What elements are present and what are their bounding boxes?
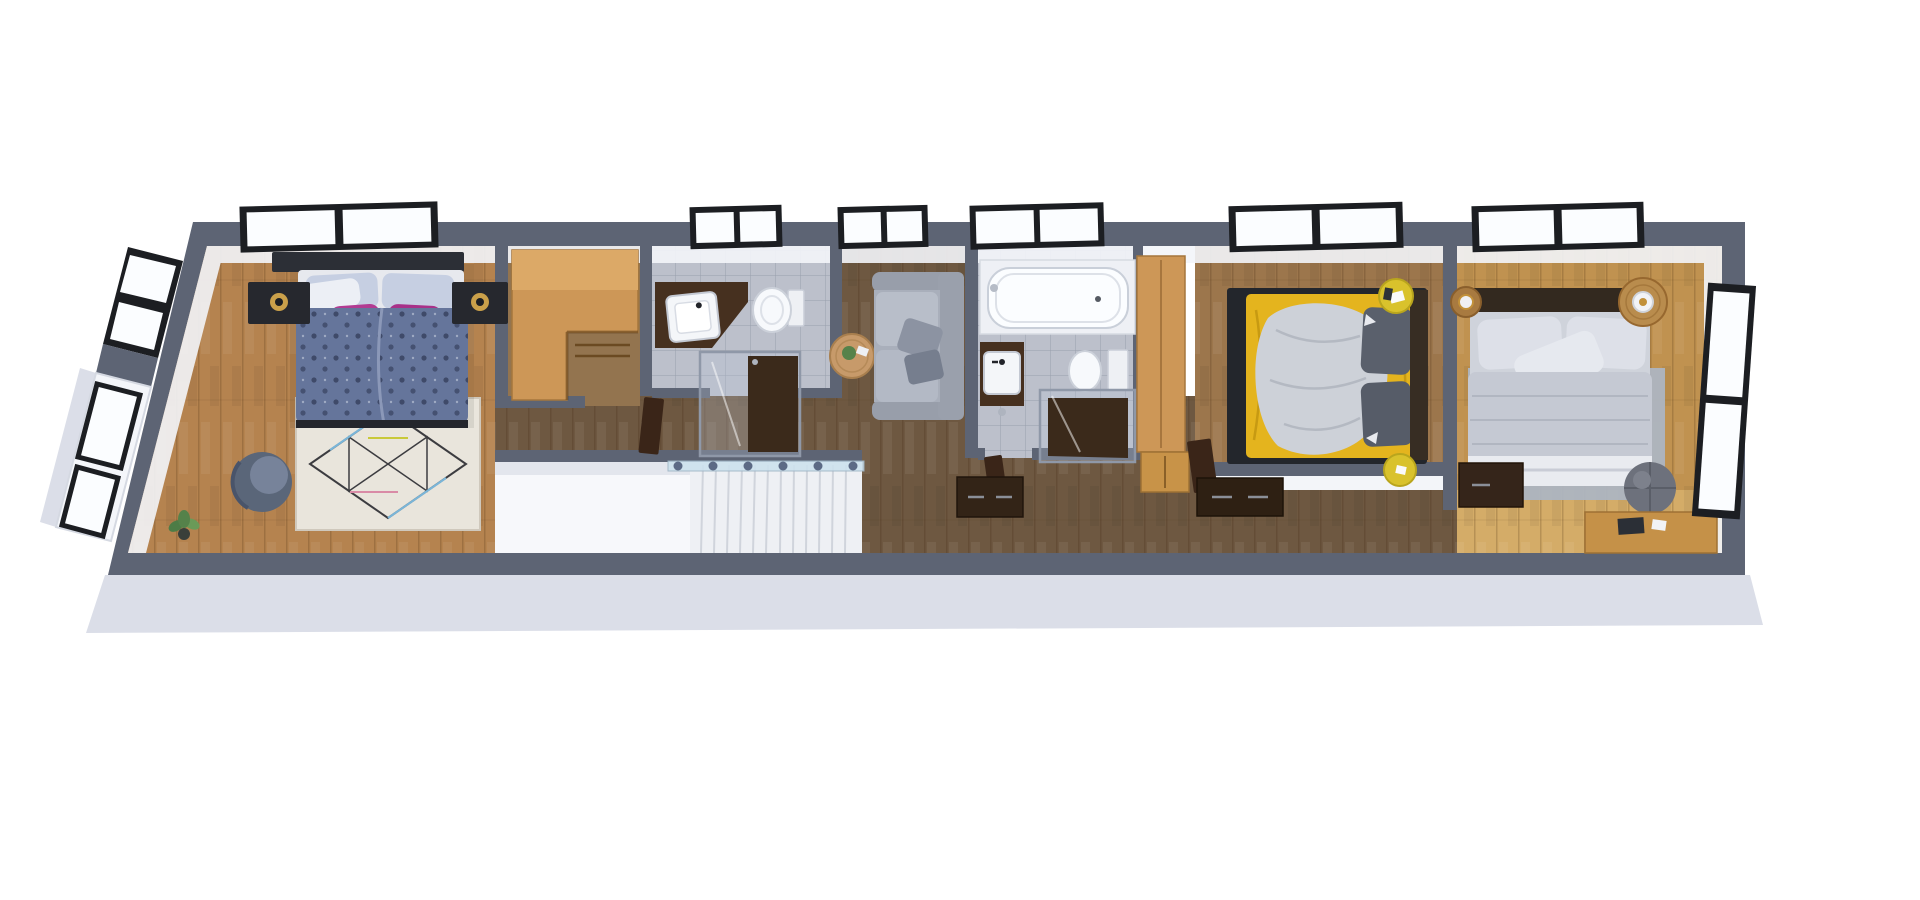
wall-closet-bathroom1 (640, 246, 652, 396)
floor-plan-render (0, 0, 1920, 900)
bath1-toilet (753, 288, 804, 332)
wall-bedroom2-bedroom3 (1443, 246, 1457, 510)
bathroom1-north-window (689, 205, 782, 249)
bed1-foot-rail (296, 420, 468, 428)
armchair (232, 452, 292, 512)
lamp-right-top (476, 298, 484, 306)
floor-plan-svg (0, 0, 1920, 900)
bed3-dresser (1459, 463, 1523, 507)
bed3-nightstand-left (1451, 287, 1481, 317)
wall-bathroom2-south-a (978, 448, 985, 460)
bathroom2-north-window (969, 202, 1104, 249)
wall-bathroom1-south-b (798, 388, 830, 398)
bath2-shower (1040, 390, 1135, 462)
pouf (1624, 462, 1676, 514)
bedroom3-north-window (1471, 202, 1644, 252)
coffee-table (830, 334, 874, 378)
glass-balustrade (668, 461, 864, 471)
bed3-desk (1585, 512, 1717, 553)
bathtub (980, 260, 1135, 334)
bath2-vanity (980, 342, 1024, 416)
lamp-left-top (275, 298, 283, 306)
hall-dresser-2 (1197, 478, 1283, 516)
bedroom1-north-window (239, 201, 438, 252)
hall-dresser-1 (957, 477, 1023, 517)
bedroom2-north-window (1228, 202, 1403, 253)
wall-stairwell-north (495, 450, 862, 462)
sofa-back (938, 272, 964, 420)
bath1-sink (666, 292, 721, 343)
bed2-headboard (1410, 290, 1428, 460)
slab-south-edge (86, 575, 1763, 633)
bed1-headboard (272, 252, 464, 272)
wall-bedroom1-closet (495, 246, 508, 406)
stairwell (495, 461, 864, 553)
wall-sitting-bathroom2 (965, 246, 978, 458)
bed3-nightstand-right (1619, 278, 1667, 326)
wardrobe-counter-top (512, 250, 638, 290)
bath1-shower (700, 352, 800, 456)
sitting-north-window (837, 205, 928, 249)
east-window-pane-1 (1706, 291, 1749, 397)
side-table-north (1379, 279, 1413, 313)
sofa (872, 272, 964, 420)
east-window-pane-2 (1698, 403, 1741, 511)
side-table-south (1384, 454, 1416, 486)
bedroom-2 (1227, 279, 1428, 486)
